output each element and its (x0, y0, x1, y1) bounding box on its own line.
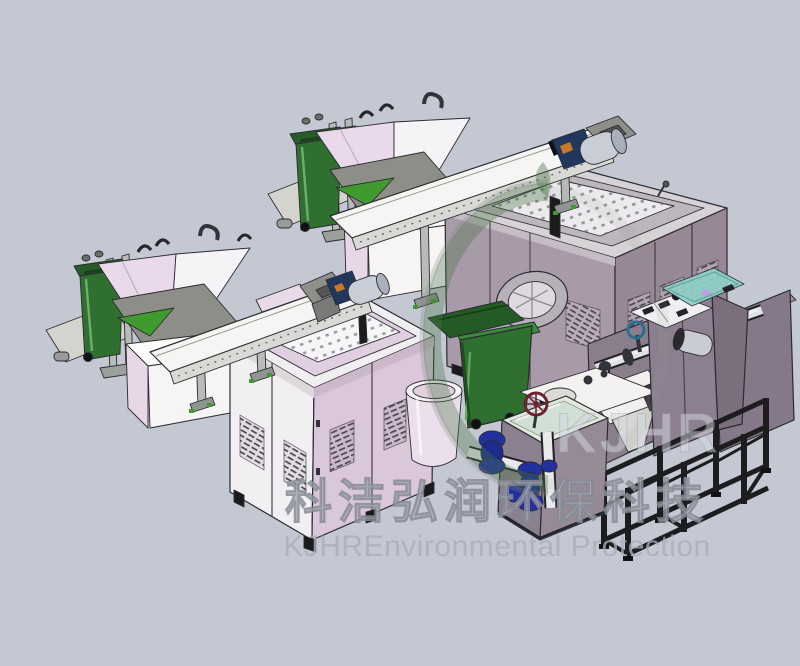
roller (54, 352, 69, 361)
watermark-en-line: KJHREnvironmental Protection (283, 530, 711, 563)
roller (277, 219, 292, 228)
render-canvas: KJHR 科洁弘润环保科技 KJHREnvironmental Protecti… (0, 0, 800, 666)
equipment-line-render: KJHR 科洁弘润环保科技 KJHREnvironmental Protecti… (0, 0, 800, 666)
watermark-cn-line: 科洁弘润环保科技 (285, 475, 709, 528)
pipe-flange (541, 460, 557, 472)
watermark-logo-letters: KJHR (556, 401, 720, 464)
